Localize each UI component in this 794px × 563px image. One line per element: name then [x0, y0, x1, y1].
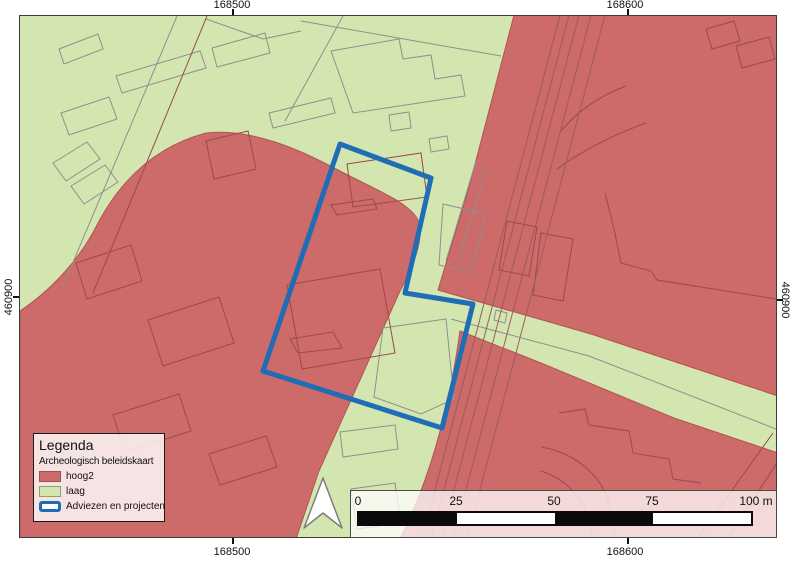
- bottom-coord-168500: 168500: [214, 546, 251, 558]
- scalebar-tick-75: 75: [645, 494, 658, 508]
- scalebar-tick-0: 0: [355, 494, 362, 508]
- top-coord-168500: 168500: [214, 0, 251, 11]
- adviezen-swatch: [39, 501, 61, 512]
- legend-item-laag: laag: [39, 484, 159, 498]
- hoog2-swatch: [39, 471, 61, 482]
- legend-item-label: Adviezen en projecten: [66, 501, 165, 512]
- bottom-tick-168500: [232, 538, 234, 544]
- scalebar-segment: [457, 513, 555, 524]
- scalebar-box: 0 25 50 75 100 m: [350, 490, 777, 538]
- bottom-tick-168600: [627, 538, 629, 544]
- scalebar-segment: [359, 513, 457, 524]
- legend-item-label: hoog2: [66, 471, 94, 482]
- legend-item-hoog2: hoog2: [39, 469, 159, 483]
- top-coord-168600: 168600: [607, 0, 644, 11]
- map-canvas[interactable]: Legenda Archeologisch beleidskaart hoog2…: [19, 15, 777, 538]
- left-coord-460900: 460900: [3, 269, 15, 325]
- legend-title: Legenda: [39, 437, 159, 453]
- scalebar-end-label: 100 m: [739, 494, 772, 508]
- laag-swatch: [39, 486, 61, 497]
- legend-item-label: laag: [66, 486, 85, 497]
- scalebar-bar: [357, 511, 753, 526]
- legend-box: Legenda Archeologisch beleidskaart hoog2…: [33, 433, 165, 522]
- scalebar-segment: [555, 513, 653, 524]
- scalebar-segment: [653, 513, 751, 524]
- right-coord-460900: 460900: [779, 272, 791, 328]
- scalebar-tick-25: 25: [449, 494, 462, 508]
- scalebar-tick-50: 50: [547, 494, 560, 508]
- map-export-page: Legenda Archeologisch beleidskaart hoog2…: [0, 0, 794, 563]
- legend-item-adviezen: Adviezen en projecten: [39, 499, 159, 513]
- legend-subtitle: Archeologisch beleidskaart: [39, 456, 159, 467]
- bottom-coord-168600: 168600: [607, 546, 644, 558]
